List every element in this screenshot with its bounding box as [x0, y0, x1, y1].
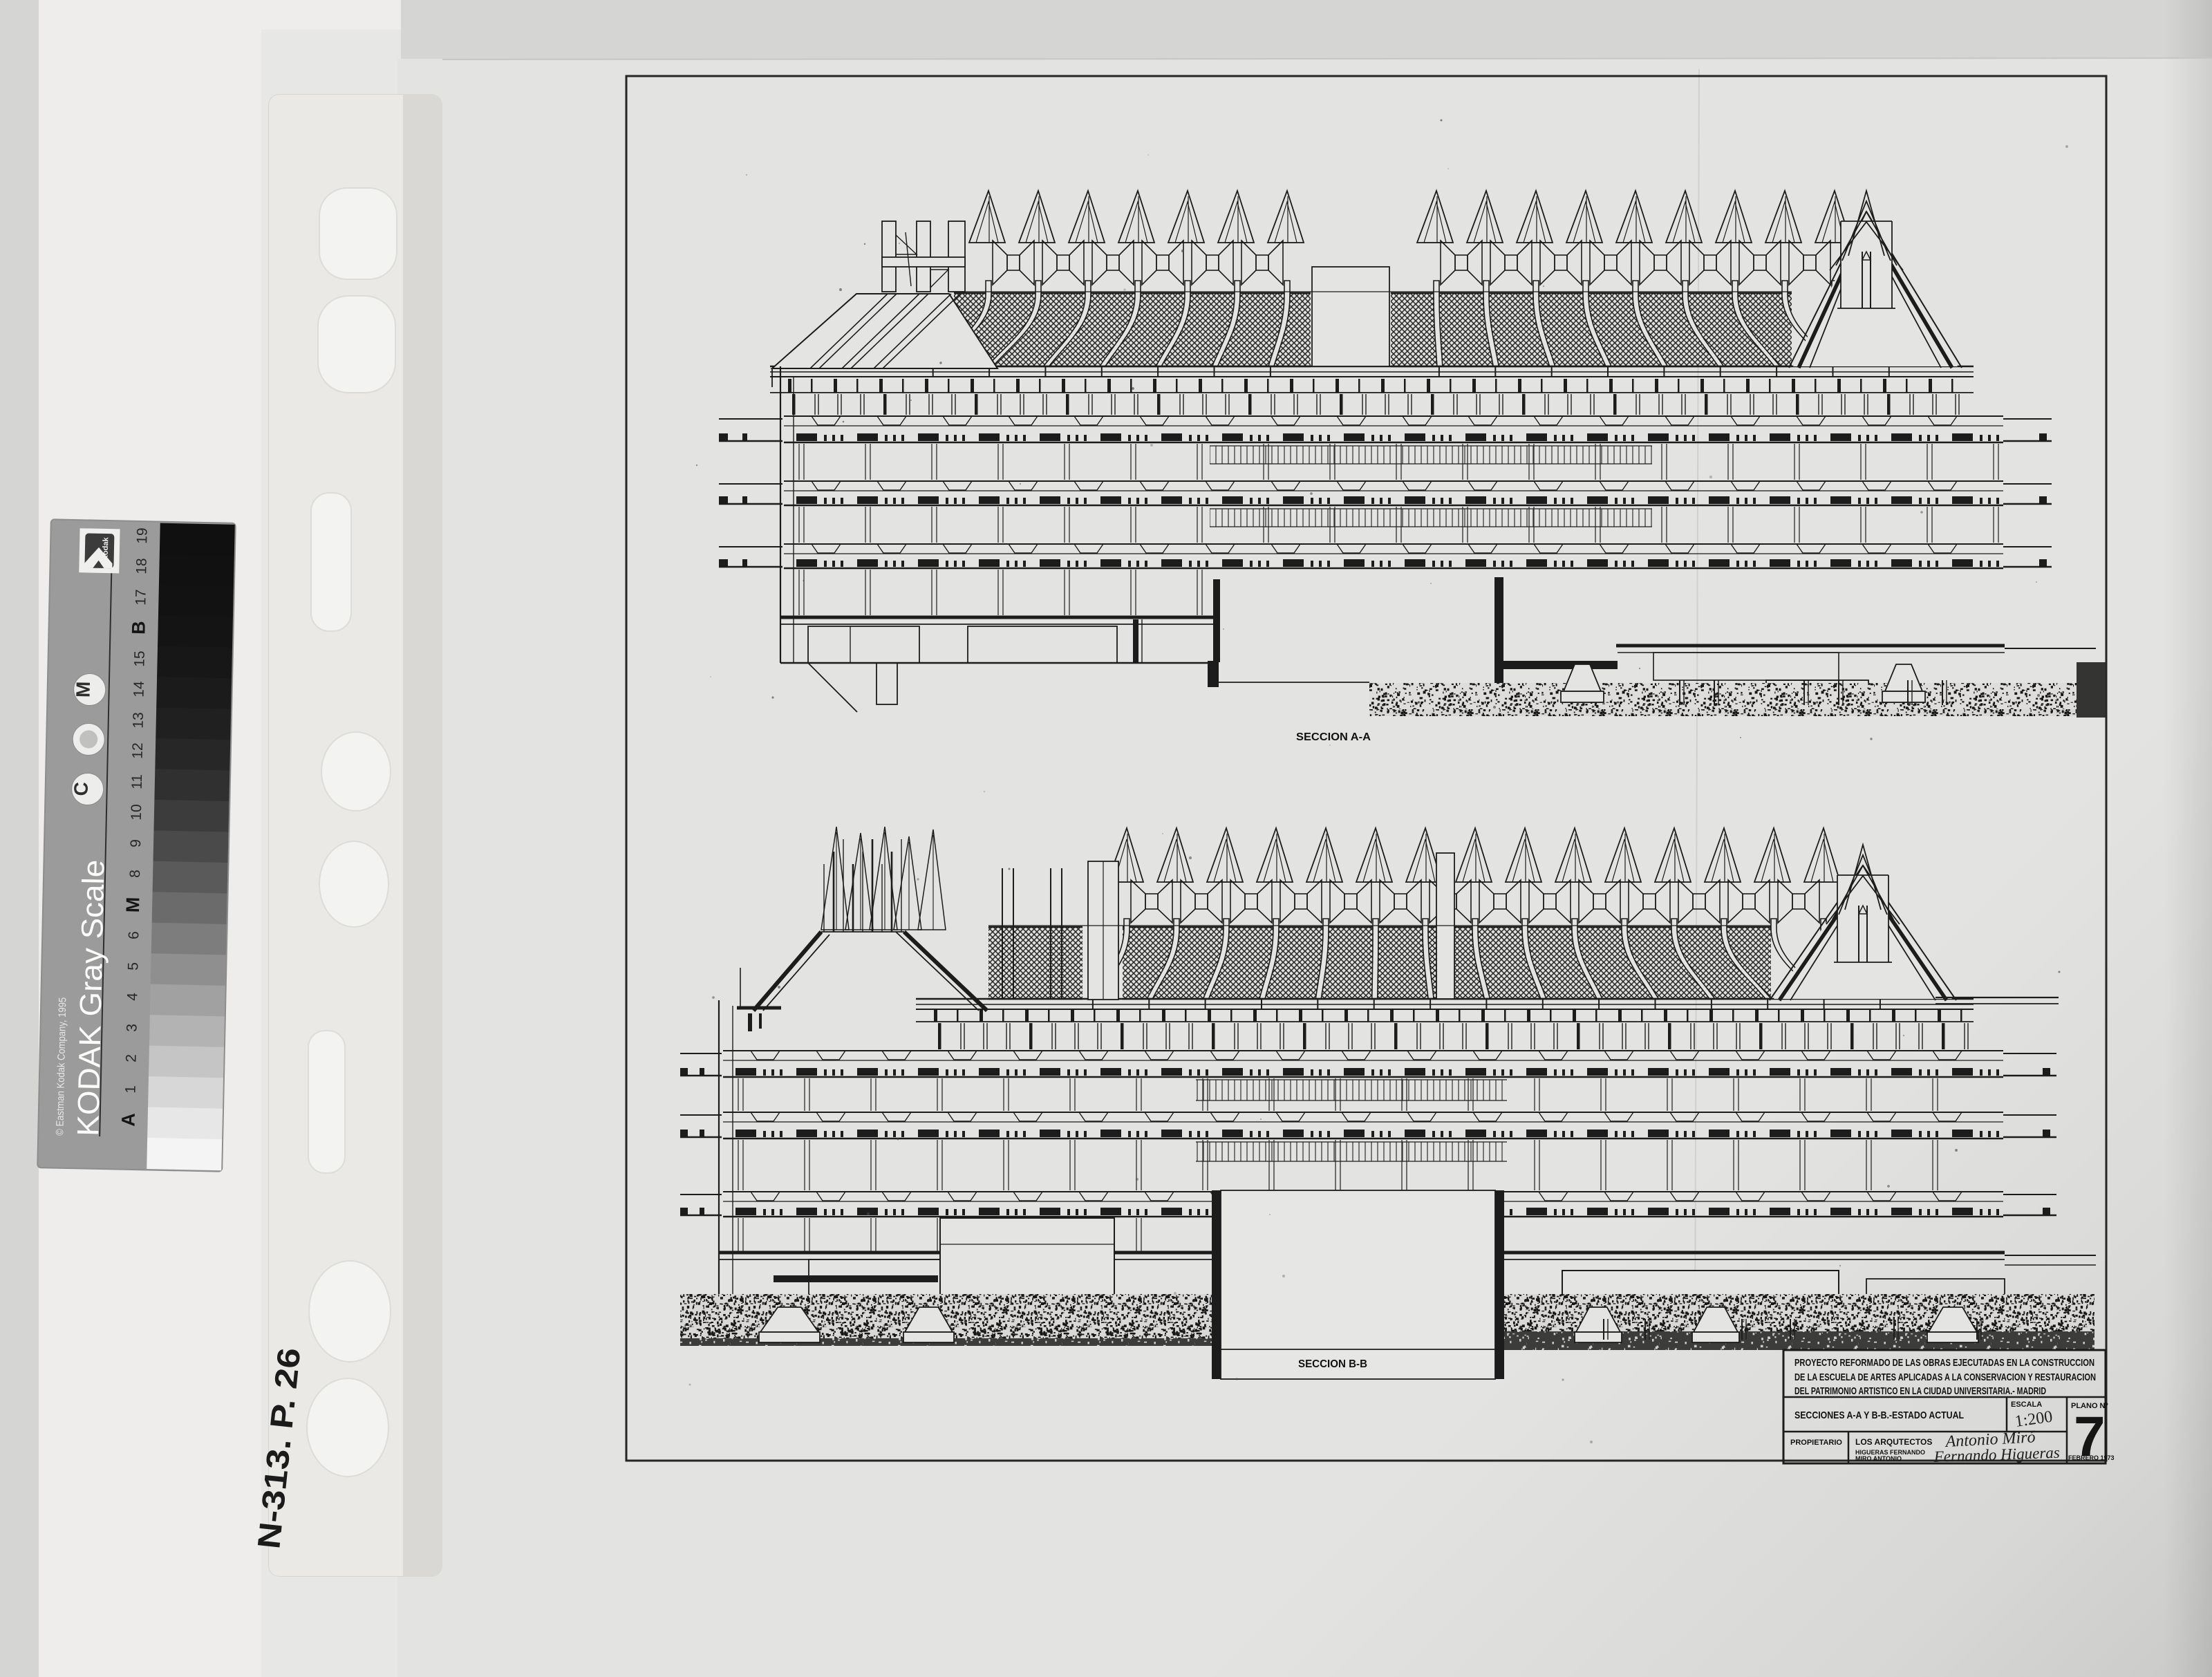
svg-text:10: 10 [129, 804, 144, 821]
svg-text:19: 19 [134, 527, 150, 544]
svg-text:11: 11 [129, 774, 145, 789]
svg-text:Fernando Higueras: Fernando Higueras [1933, 1444, 2060, 1465]
svg-text:DE LA ESCUELA DE ARTES APLICAD: DE LA ESCUELA DE ARTES APLICADAS A LA CO… [1794, 1371, 2096, 1383]
svg-text:MIRO ANTONIO: MIRO ANTONIO [1855, 1455, 1902, 1462]
svg-text:13: 13 [131, 712, 147, 729]
svg-text:3: 3 [124, 1024, 140, 1032]
svg-text:Kodak: Kodak [102, 536, 111, 561]
svg-text:2: 2 [123, 1054, 139, 1062]
svg-text:ESCALA: ESCALA [2011, 1400, 2042, 1409]
svg-text:5: 5 [125, 962, 141, 971]
svg-text:6: 6 [126, 931, 142, 939]
svg-text:N-313. P. 26: N-313. P. 26 [250, 1346, 307, 1550]
svg-text:18: 18 [133, 558, 149, 574]
svg-text:PROPIETARIO: PROPIETARIO [1790, 1439, 1842, 1447]
svg-text:M: M [72, 681, 93, 697]
svg-text:17: 17 [133, 589, 149, 606]
svg-text:A: A [118, 1113, 138, 1127]
svg-text:KODAK Gray Scale: KODAK Gray Scale [71, 859, 111, 1136]
svg-text:SECCION A-A: SECCION A-A [1296, 731, 1371, 743]
svg-text:4: 4 [124, 993, 140, 1001]
svg-text:15: 15 [131, 650, 147, 667]
svg-text:8: 8 [127, 870, 143, 878]
svg-text:SECCION B-B: SECCION B-B [1298, 1358, 1367, 1370]
svg-text:PROYECTO REFORMADO DE LAS OBRA: PROYECTO REFORMADO DE LAS OBRAS EJECUTAD… [1794, 1357, 2094, 1369]
svg-text:9: 9 [128, 839, 144, 847]
svg-text:C: C [70, 782, 91, 796]
svg-text:1:200: 1:200 [2014, 1408, 2054, 1431]
svg-text:DEL PATRIMONIO ARTISTICO EN LA: DEL PATRIMONIO ARTISTICO EN LA CIUDAD UN… [1794, 1385, 2046, 1397]
svg-text:LOS ARQUTECTOS: LOS ARQUTECTOS [1855, 1437, 1932, 1447]
svg-text:12: 12 [130, 742, 146, 759]
svg-text:M: M [122, 897, 143, 912]
svg-text:SECCIONES A-A Y B-B.-ESTADO: SECCIONES A-A Y B-B.-ESTADO ACTUAL [1794, 1409, 1964, 1421]
svg-text:1: 1 [122, 1085, 138, 1094]
svg-text:B: B [128, 621, 149, 635]
svg-text:14: 14 [131, 681, 147, 697]
svg-text:FEBRERO 1973: FEBRERO 1973 [2068, 1454, 2115, 1461]
